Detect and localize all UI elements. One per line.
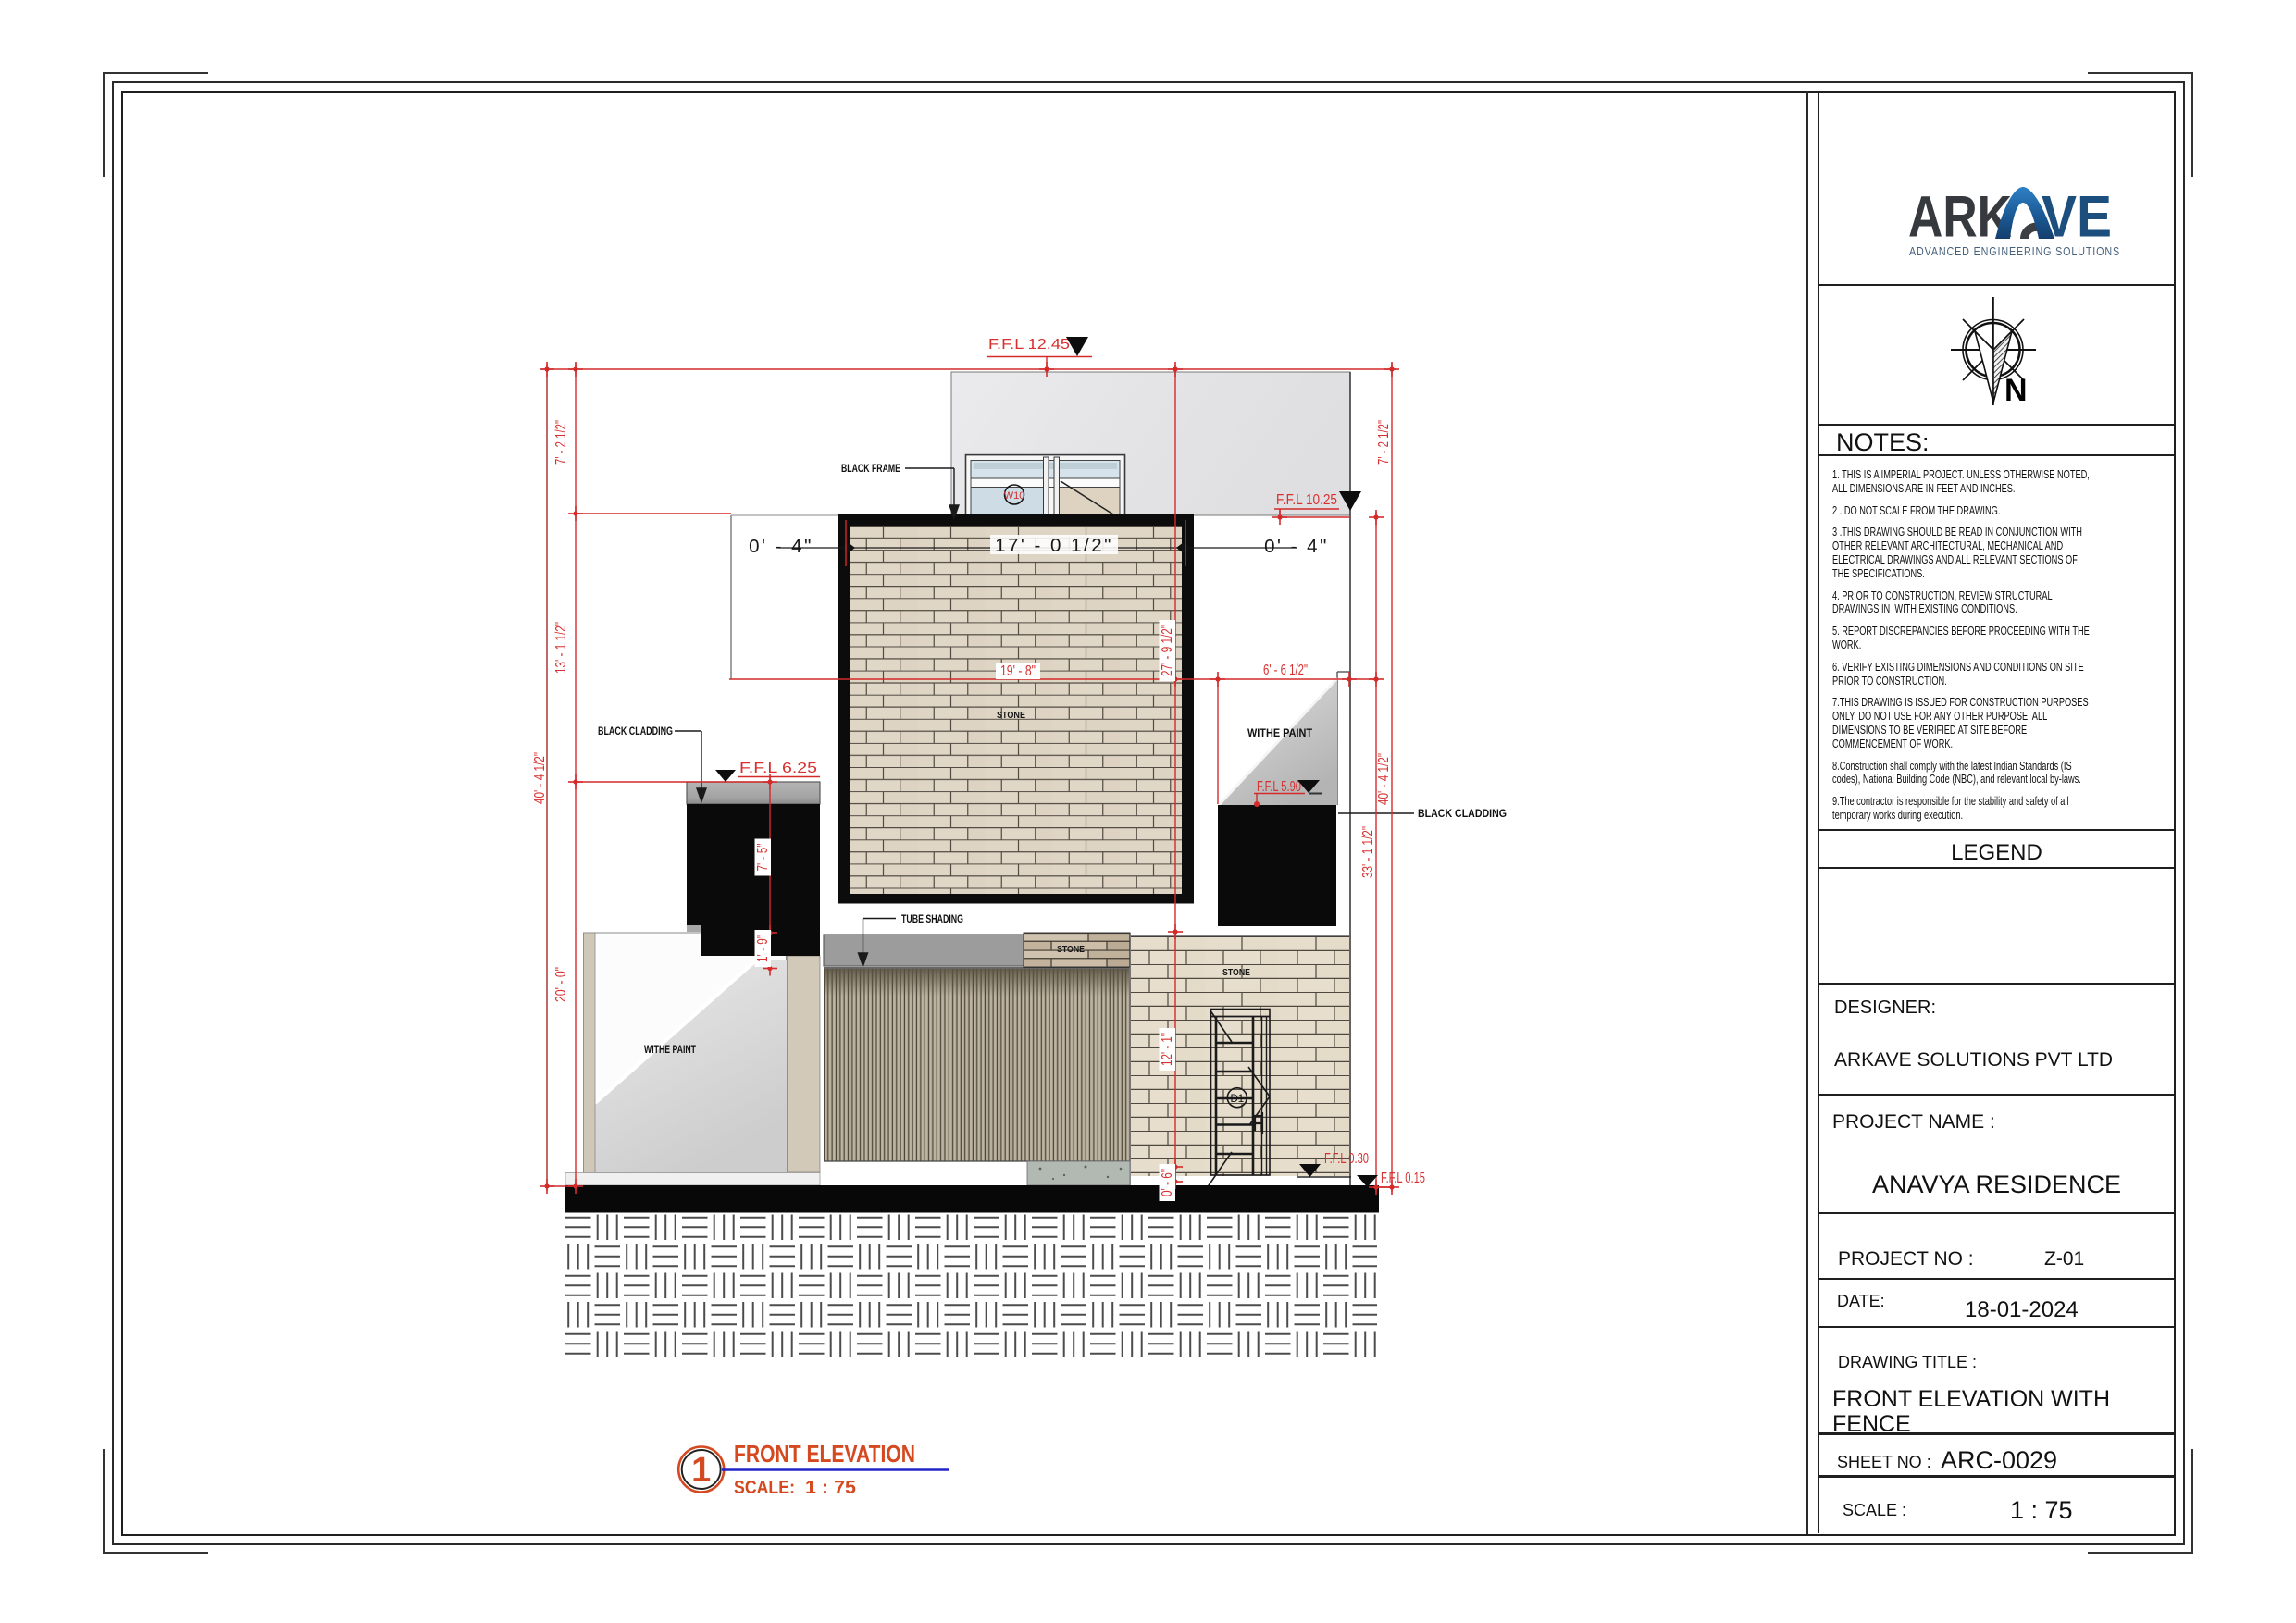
svg-text:F.F.L 6.25: F.F.L 6.25 xyxy=(739,761,817,776)
svg-text:1' - 9": 1' - 9" xyxy=(755,935,771,962)
svg-text:STONE: STONE xyxy=(997,710,1025,721)
svg-text:STONE: STONE xyxy=(1057,945,1085,955)
svg-text:W10: W10 xyxy=(1004,490,1025,502)
svg-text:27' - 9 1/2": 27' - 9 1/2" xyxy=(1160,625,1175,676)
svg-text:20' - 0": 20' - 0" xyxy=(553,967,569,1002)
svg-text:BLACK FRAME: BLACK FRAME xyxy=(841,462,900,475)
svg-text:FRONT ELEVATION: FRONT ELEVATION xyxy=(734,1440,915,1468)
svg-text:6' - 6 1/2": 6' - 6 1/2" xyxy=(1263,663,1308,678)
svg-text:0' - 4": 0' - 4" xyxy=(1264,536,1329,557)
svg-text:7' - 2 1/2": 7' - 2 1/2" xyxy=(553,420,569,465)
svg-text:7' - 2 1/2": 7' - 2 1/2" xyxy=(1376,420,1392,465)
svg-text:TUBE SHADING: TUBE SHADING xyxy=(901,912,963,925)
svg-text:F.F.L 5.90: F.F.L 5.90 xyxy=(1257,779,1301,795)
svg-text:13' - 1 1/2": 13' - 1 1/2" xyxy=(553,622,569,674)
svg-text:N: N xyxy=(2004,373,2028,408)
svg-text:F.F.L 12.45: F.F.L 12.45 xyxy=(988,337,1070,353)
svg-text:0' - 6": 0' - 6" xyxy=(1160,1169,1175,1196)
svg-text:VE: VE xyxy=(2042,185,2112,250)
svg-text:17' - 0 1/2": 17' - 0 1/2" xyxy=(995,535,1113,556)
svg-text:1: 1 xyxy=(691,1451,711,1490)
svg-text:40' - 4 1/2": 40' - 4 1/2" xyxy=(1376,753,1392,805)
svg-text:1 : 75: 1 : 75 xyxy=(805,1478,856,1498)
svg-text:0' - 4": 0' - 4" xyxy=(749,536,813,557)
svg-text:12' - 1": 12' - 1" xyxy=(1160,1033,1175,1066)
svg-text:F.F.L 0.15: F.F.L 0.15 xyxy=(1381,1171,1425,1186)
svg-text:7' - 5": 7' - 5" xyxy=(755,844,771,872)
svg-text:ADVANCED ENGINEERING SOLUTIONS: ADVANCED ENGINEERING SOLUTIONS xyxy=(1909,245,2120,258)
svg-text:BLACK CLADDING: BLACK CLADDING xyxy=(598,725,673,737)
svg-text:BLACK CLADDING: BLACK CLADDING xyxy=(1418,807,1507,820)
svg-text:D1: D1 xyxy=(1230,1094,1244,1105)
svg-text:33' - 1 1/2": 33' - 1 1/2" xyxy=(1360,826,1376,878)
svg-text:ARK: ARK xyxy=(1908,185,2012,250)
svg-text:WITHE PAINT: WITHE PAINT xyxy=(644,1043,696,1056)
svg-text:F.F.L 10.25: F.F.L 10.25 xyxy=(1276,492,1337,508)
svg-text:WITHE PAINT: WITHE PAINT xyxy=(1247,726,1313,739)
svg-text:F.F.L 0.30: F.F.L 0.30 xyxy=(1324,1151,1369,1167)
svg-text:SCALE:: SCALE: xyxy=(734,1478,795,1498)
svg-text:19' - 8": 19' - 8" xyxy=(1000,663,1036,679)
svg-text:STONE: STONE xyxy=(1222,968,1250,978)
svg-text:40' - 4 1/2": 40' - 4 1/2" xyxy=(532,752,548,804)
